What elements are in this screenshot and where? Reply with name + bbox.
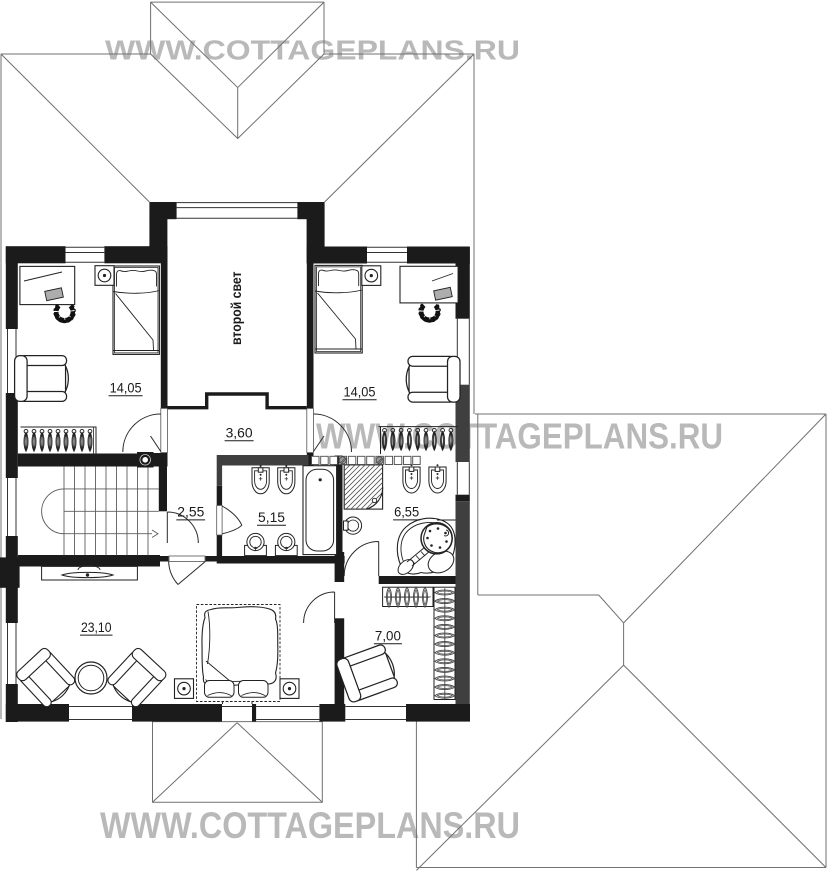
svg-text:WWW.COTTAGEPLANS.RU: WWW.COTTAGEPLANS.RU [316,415,723,456]
svg-text:6,55: 6,55 [394,504,419,520]
svg-text:14,05: 14,05 [110,380,142,396]
svg-text:23,10: 23,10 [81,619,112,635]
svg-text:7,00: 7,00 [375,628,401,644]
svg-text:5,15: 5,15 [258,509,285,525]
svg-text:3,60: 3,60 [226,425,253,441]
svg-text:второй свет: второй свет [228,271,244,345]
svg-text:WWW.COTTAGEPLANS.RU: WWW.COTTAGEPLANS.RU [100,804,520,846]
svg-text:14,05: 14,05 [344,384,376,400]
svg-text:WWW.COTTAGEPLANS.RU: WWW.COTTAGEPLANS.RU [105,35,520,66]
svg-text:2,55: 2,55 [177,504,204,520]
